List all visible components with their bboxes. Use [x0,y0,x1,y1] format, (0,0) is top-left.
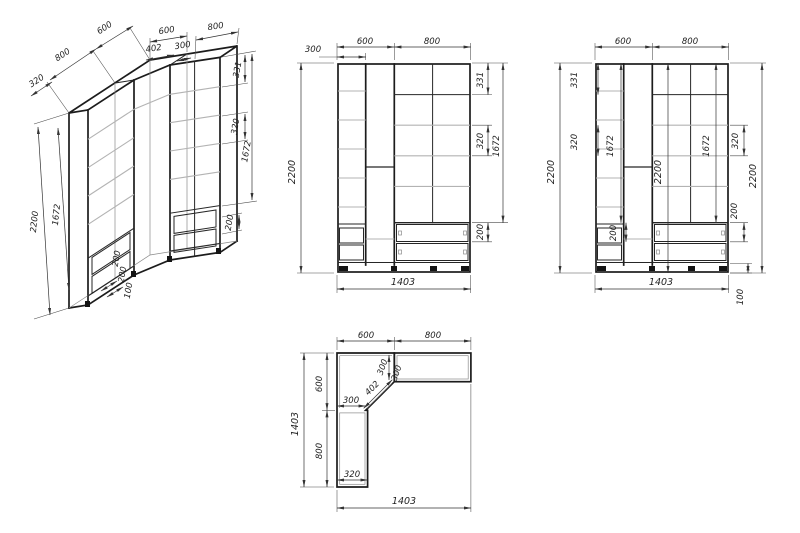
dim-label: 600 [357,37,373,47]
dim-label: 1403 [392,496,416,507]
plan-carcass [337,353,471,487]
dim-label: 800 [424,37,440,47]
dim-label: 2200 [287,160,298,184]
dim-label: 1672 [51,204,63,227]
dim-label: 600 [615,37,631,47]
dim-label: 331 [232,61,245,79]
dim-label: 300 [390,364,405,383]
dim-label: 800 [425,331,441,341]
dimensioned-elevation-view: 600 800 2200 331 320 1672 200 2200 1672 [546,37,766,305]
dim-label: 320 [344,470,360,480]
dim-label: 800 [315,443,325,459]
dim-label: 2200 [29,211,41,234]
dim-label: 1403 [649,277,673,288]
dim-label: 600 [315,376,325,392]
iso-carcass [69,46,237,308]
dim-label: 402 [363,379,382,398]
dim-label: 800 [207,21,225,33]
dim-label: 320 [570,134,580,150]
foot [216,248,221,254]
foot [131,271,136,277]
dim-label: 100 [123,282,136,300]
foot [167,256,172,262]
dim-label: 800 [53,47,72,64]
dim-label: 1403 [391,277,415,288]
dim-label: 600 [95,20,114,37]
technical-drawing-page: 800 600 320 600 402 300 800 331 320 [0,0,800,533]
dim-label: 320 [731,133,741,149]
dim-label: 1672 [492,135,502,157]
dim-label: 100 [736,289,746,305]
dim-label: 300 [305,45,321,55]
dim-label: 1403 [290,412,301,436]
dim-label: 600 [358,331,374,341]
dim-label: 200 [609,225,619,241]
dim-label: 600 [158,25,176,37]
dim-label: 200 [224,214,237,232]
dim-label: 2200 [653,160,664,184]
foot [85,301,90,307]
isometric-view: 800 600 320 600 402 300 800 331 320 [27,20,257,319]
dim-label: 331 [476,72,486,88]
dim-label: 331 [570,72,580,88]
dim-label: 200 [730,203,740,219]
dim-label: 300 [376,358,391,377]
front-dimensions: 600 800 300 2200 331 320 1672 20 [287,37,508,293]
front-elevation-view: 600 800 300 2200 331 320 1672 20 [287,37,508,293]
front2-dimensions: 600 800 2200 331 320 1672 200 2200 1672 [546,37,766,305]
wardrobe-drawing-canvas: 800 600 320 600 402 300 800 331 320 [0,0,800,533]
dim-label: 2200 [748,164,759,188]
dim-label: 1672 [702,135,712,157]
dim-label: 200 [117,266,130,284]
dim-label: 300 [174,40,192,52]
dim-label: 1672 [606,135,616,157]
plan-dimensions: 600 800 1403 600 800 300 402 300 300 [290,331,471,512]
dim-label: 320 [476,133,486,149]
dim-label: 402 [145,43,163,55]
dim-label: 320 [230,118,243,136]
dim-label: 2200 [546,160,557,184]
dim-label: 800 [682,37,698,47]
dim-label: 200 [111,250,124,268]
dim-label: 200 [476,224,486,240]
dim-label: 300 [343,396,359,406]
plan-view: 600 800 1403 600 800 300 402 300 300 [290,331,471,512]
